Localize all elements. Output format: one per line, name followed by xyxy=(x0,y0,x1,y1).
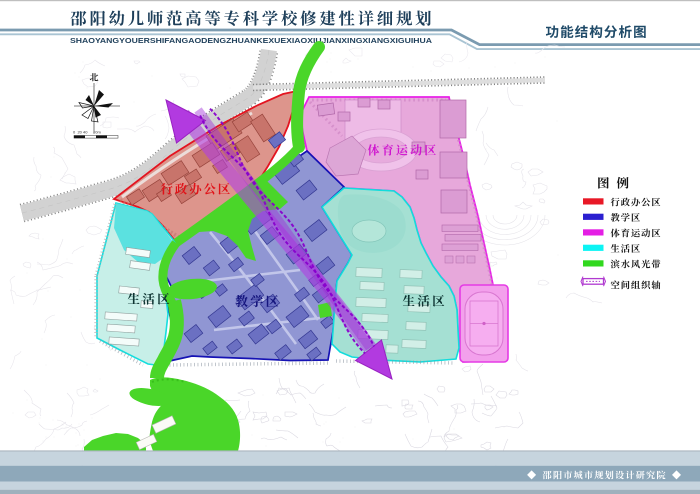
svg-text:SHAOYANGYOUERSHIFANGAODENGZHUA: SHAOYANGYOUERSHIFANGAODENGZHUANKEXUEXIAO… xyxy=(70,38,432,45)
svg-text:0 20 40 80m: 0 20 40 80m xyxy=(73,130,101,135)
